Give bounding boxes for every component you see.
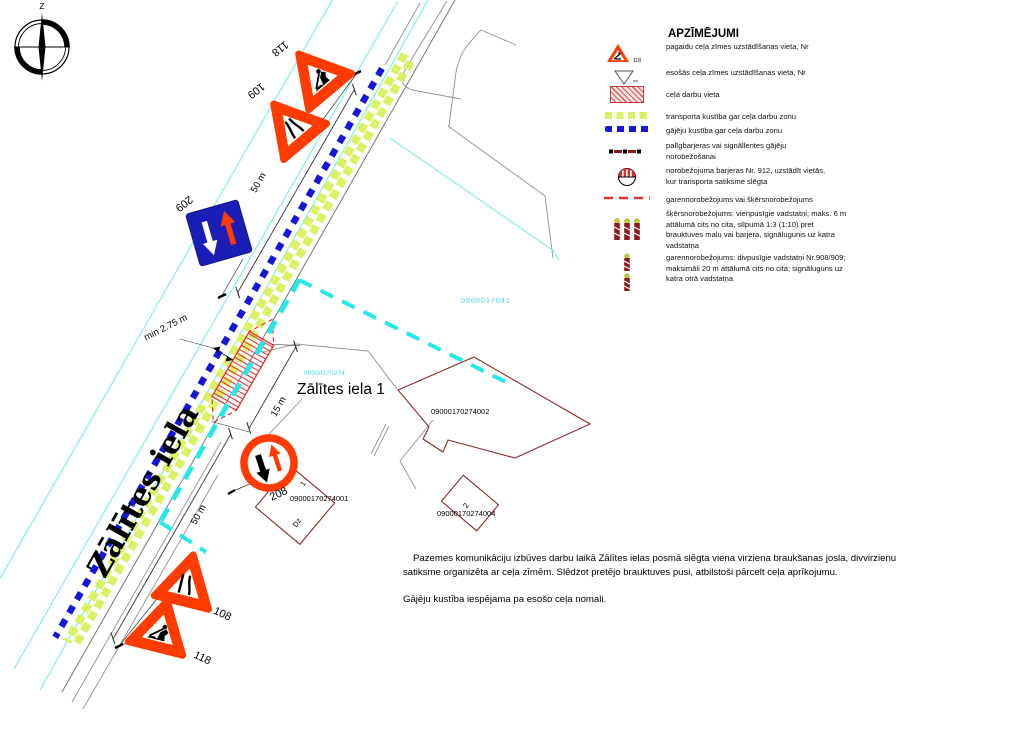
legend-label: šķērsnorobežojums: vienpusīgie vadstatņi… (656, 209, 846, 251)
legend-item-transport-route: transporta kustība gar ceļa darbu zonu (598, 112, 1018, 123)
barrier-912-icon (598, 166, 656, 188)
notes-block: Pazemes komunikāciju izbūves darbu laikā… (403, 552, 919, 607)
note-traffic-organization: Pazemes komunikāciju izbūves darbu laikā… (403, 552, 919, 580)
legend-item-existing-sign: esošās ceļa zīmes uzstādīšanas vieta, Nr (598, 68, 1018, 86)
longitudinal-dash-icon (598, 195, 656, 201)
boundary-cyan-northeast (299, 280, 512, 385)
street-name-label: Zālītes iela (80, 399, 206, 584)
road-edge-lines (0, 0, 455, 709)
building-main-number: 09000170274002 (431, 407, 489, 416)
legend-item-aux-barrier: palīgbarjeras vai signāllentes gājēju no… (598, 141, 1018, 162)
legend-item-cross-posts: šķērsnorobežojums: vienpusīgie vadstatņi… (598, 209, 1018, 251)
legend-item-pedestrian-route: gājēju kustība gar ceļa darbu zonu (598, 126, 1018, 137)
site-plan-drawing: Z (0, 0, 1024, 730)
legend-item-work-area: ceļa darbu vieta (598, 86, 1018, 103)
svg-text:118: 118 (633, 58, 641, 64)
compass-north-label: Z (39, 1, 44, 11)
dwelling-floors-label: 1 (298, 479, 308, 488)
legend-item-longitudinal-dash: garennorobežojums vai šķērsnorobežojums (598, 195, 1018, 206)
sign-108-label: 108 (211, 605, 233, 624)
legend-label: garennorobežojums vai šķērsnorobežojums (656, 195, 813, 206)
traffic-management-plan: Z (0, 0, 1024, 730)
sign-118-bottom-label: 118 (192, 649, 213, 667)
transport-route-icon (598, 112, 656, 119)
legend-label: transporta kustība gar ceļa darbu zonu (656, 112, 796, 123)
dim-bottom-50m-label: 50 m (189, 503, 209, 527)
side-street-south-edge (448, 126, 553, 258)
building-main-outline (398, 357, 590, 458)
cross-posts-icon (598, 209, 656, 243)
dim-15m-label: 15 m (269, 395, 289, 419)
sign-118-top-label: 118 (269, 38, 290, 58)
legend-label: esošās ceļa zīmes uzstādīšanas vieta, Nr (656, 68, 806, 79)
legend-item-temp-sign: 118 pagaidu ceļa zīmes uzstādīšanas viet… (598, 42, 1018, 64)
legend-title: APZĪMĒJUMI (668, 28, 739, 40)
legend-label: palīgbarjeras vai signāllentes gājēju no… (656, 141, 786, 162)
building-small-outline (441, 475, 498, 531)
compass-arc-sw (17, 47, 42, 72)
legend-label: pagaidu ceļa zīmes uzstādīšanas vieta, N… (656, 42, 809, 53)
dwelling-mark-label: Dz (291, 516, 304, 529)
building-small-number: 09000170274004 (437, 509, 495, 518)
side-street-cyan-edge (390, 138, 559, 261)
legend-label: norobežojuma barjeras Nr. 912, uzstādīt … (656, 166, 825, 187)
work-area-icon (598, 86, 656, 103)
parcel-number-property: 09000170274 (304, 371, 345, 377)
parcel-line-top2 (402, 1, 461, 99)
north-compass: Z (14, 1, 70, 81)
note-pedestrians: Gājēju kustība iespējama pa esošo ceļa n… (403, 593, 919, 607)
legend-label: garennorobežojums: divpusīgie vadstatņi … (656, 253, 845, 285)
cyan-edge-nw-near (14, 1, 398, 669)
parcel-number-road: 0900017041 (461, 298, 511, 305)
existing-sign-icon (598, 68, 656, 86)
side-street-edges (390, 138, 559, 261)
aux-barrier-icon (598, 141, 656, 155)
fence-double-line (371, 424, 389, 456)
pedestrian-route-icon (598, 126, 656, 132)
compass-arc-ne (42, 22, 67, 47)
long-posts-icon (598, 253, 656, 293)
dim-min275-label: min 2.75 m (142, 312, 189, 343)
building-dwelling-number: 09000170274001 (290, 494, 348, 503)
parcel-line-mid3 (400, 420, 433, 489)
sign-209-oncoming-priority-icon (186, 200, 253, 267)
address-label: Zālītes iela 1 (297, 381, 385, 398)
legend-item-long-posts: garennorobežojums: divpusīgie vadstatņi … (598, 253, 1018, 293)
legend-label: gājēju kustība gar ceļa darbu zonu (656, 126, 782, 137)
legend-item-barrier-912: norobežojuma barjeras Nr. 912, uzstādīt … (598, 166, 1018, 188)
legend-label: ceļa darbu vieta (656, 86, 720, 101)
temp-sign-icon: 118 (598, 42, 656, 64)
sign-209-label: 209 (173, 193, 195, 214)
sign-109-label: 109 (245, 80, 267, 101)
dim-top-50m-label: 50 m (249, 171, 269, 195)
driveway-curve (449, 30, 516, 126)
